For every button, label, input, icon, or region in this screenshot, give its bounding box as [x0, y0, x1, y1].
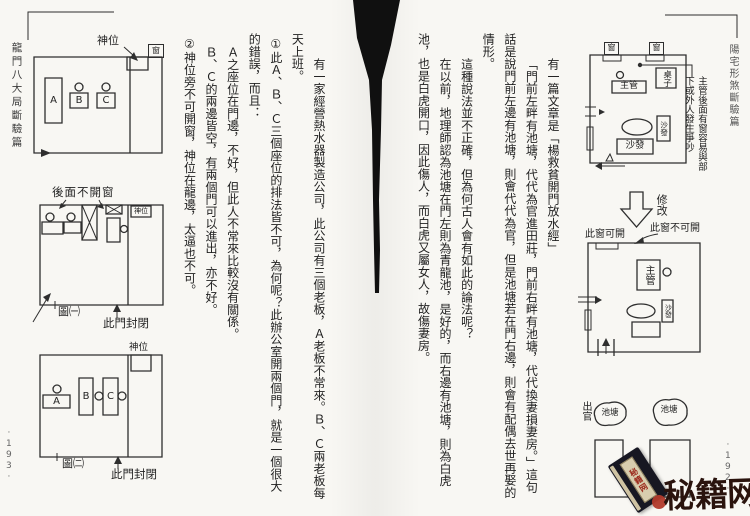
modify-label: 修改	[655, 194, 667, 216]
paragraph: 在以前，地理師認為池塘在門左則為青龍池，是好的，而右邊有池塘，則為白虎池，也是白…	[412, 33, 455, 500]
figA-window-2	[646, 55, 664, 61]
left-page-number: ·193·	[3, 428, 13, 483]
watermark-site-name: 秘籍网	[662, 466, 750, 516]
gutter-shadow	[353, 0, 400, 293]
figB-sofa-label: 沙發	[662, 300, 673, 322]
watermark-book-title: 秘籍网	[626, 465, 650, 494]
figA-window1-label: 窗	[604, 42, 619, 55]
figA-manager-chair	[617, 72, 624, 79]
right-body-text: 有一篇文章是「楊救貧開門放水經」 「門前左畔有池塘，代代為官進田莊，門前右畔有池…	[412, 33, 563, 500]
paragraph: 有一家經營熱水器製造公司，此公司有三個老板，Ａ老板不常來。Ｂ、Ｃ兩老板每天上班。	[286, 33, 329, 500]
right-spine-title: 陽宅形煞斷驗篇	[727, 44, 738, 128]
figB-window-closed-label: 此窗不可開	[650, 223, 700, 234]
paragraph: 「門前左畔有池塘，代代為官進田莊，門前右畔有池塘，代代換妻損妻房。」這句話是說門…	[477, 33, 542, 500]
fig2-chair-3	[121, 226, 128, 233]
fig3-sealed-door-label: 此門封閉	[111, 468, 157, 481]
fig3-chair-a	[53, 385, 61, 393]
fig2-chair-2	[67, 213, 75, 221]
figB-openable-window	[596, 243, 618, 249]
paragraph: 這種說法並不正確，但為何古人會有如此的論法呢？	[455, 33, 477, 500]
paragraph: ②神位旁不可開窗，神位在龍邊，太逼也不可。	[178, 33, 200, 500]
fig2-chair-1	[46, 213, 54, 221]
figB-coffee-table	[627, 304, 655, 318]
fig2-room	[33, 200, 163, 322]
fig3-chair-c	[118, 392, 126, 400]
fig2-shrine-label: 神位	[131, 206, 151, 217]
figA-sofa-bottom-label: 沙發	[617, 139, 653, 154]
figB-window-open-label: 此窗可開	[585, 229, 625, 240]
figA-manager-label: 主管	[612, 81, 646, 93]
scanned-book-spread: 龍門八大局斷驗篇 ·193· 有一家經營熱水器製造公司，此公司有三個老板，Ａ老板…	[0, 0, 750, 516]
fig3-chair-b	[95, 392, 103, 400]
left-body-text: 有一家經營熱水器製造公司，此公司有三個老板，Ａ老板不常來。Ｂ、Ｃ兩老板每天上班。…	[178, 33, 329, 500]
figA-sofa-right-label: 沙發	[657, 116, 670, 141]
fig2-back-window-label: 後面不開窗	[52, 186, 115, 199]
fig3-caption: 圖㈡	[62, 458, 84, 470]
fig2-desk-1	[42, 222, 63, 234]
fig2-desk-2	[64, 222, 81, 233]
fig1-shrine-label: 神位	[97, 35, 119, 47]
fig1-seat-a-label: A	[45, 78, 62, 123]
fig3-shrine-label: 神位	[129, 343, 148, 353]
fig1-chair-b	[75, 83, 83, 91]
figA-annotation: 主管後面有窗容易與部下或外人發生爭吵	[681, 76, 708, 178]
fig2-cabinet	[107, 218, 120, 242]
fig1-seat-b-label: B	[70, 93, 88, 108]
paragraph: Ｂ、Ｃ的兩邊皆空，有兩個門可以進出，亦不好。	[199, 33, 221, 500]
modify-down-arrow	[621, 192, 652, 227]
figA-coffee-table	[622, 119, 652, 135]
figB-manager-label: 主管	[637, 260, 660, 290]
paragraph: ①此Ａ、Ｂ、Ｃ三個座位的排法皆不可，為何呢？此辦公室開兩個門，就是一個很大的錯誤…	[243, 33, 286, 500]
figB-cabinet	[632, 322, 660, 337]
fig3-shrine-box	[131, 355, 151, 371]
figC-pond-right-label: 池塘	[656, 405, 682, 417]
fig1-seat-c-label: C	[97, 93, 115, 108]
fig2-caption: 圖㈠	[58, 306, 80, 318]
fig1-chair-c	[102, 83, 110, 91]
figA-window2-label: 窗	[649, 42, 664, 55]
diagram-linework	[0, 0, 750, 516]
right-header-rule	[665, 15, 737, 38]
figA-table-label: 桌子	[656, 68, 676, 88]
figC-pond-left-label: 池塘	[597, 408, 623, 420]
figB-manager-chair	[663, 268, 671, 276]
figA-window-1	[603, 55, 621, 61]
figA-corner-mark	[606, 154, 613, 161]
figB-room	[578, 234, 700, 356]
paragraph: Ａ之座位在門邊，不好，但此人不常來比較沒有關係。	[221, 33, 243, 500]
left-spine-title: 龍門八大局斷驗篇	[10, 42, 22, 150]
fig1-door-arrow	[41, 149, 51, 157]
fig2-sealed-door-label: 此門封閉	[103, 317, 149, 330]
fig3-seat-b-label: B	[79, 378, 93, 415]
fig3-room	[40, 355, 162, 469]
figC-exit-label: 出官	[580, 401, 591, 421]
paragraph: 有一篇文章是「楊救貧開門放水經」	[541, 33, 563, 500]
fig1-window-label: 窗	[148, 44, 164, 58]
fig3-seat-c-label: C	[103, 378, 118, 415]
fig3-seat-a-label: A	[43, 395, 70, 408]
